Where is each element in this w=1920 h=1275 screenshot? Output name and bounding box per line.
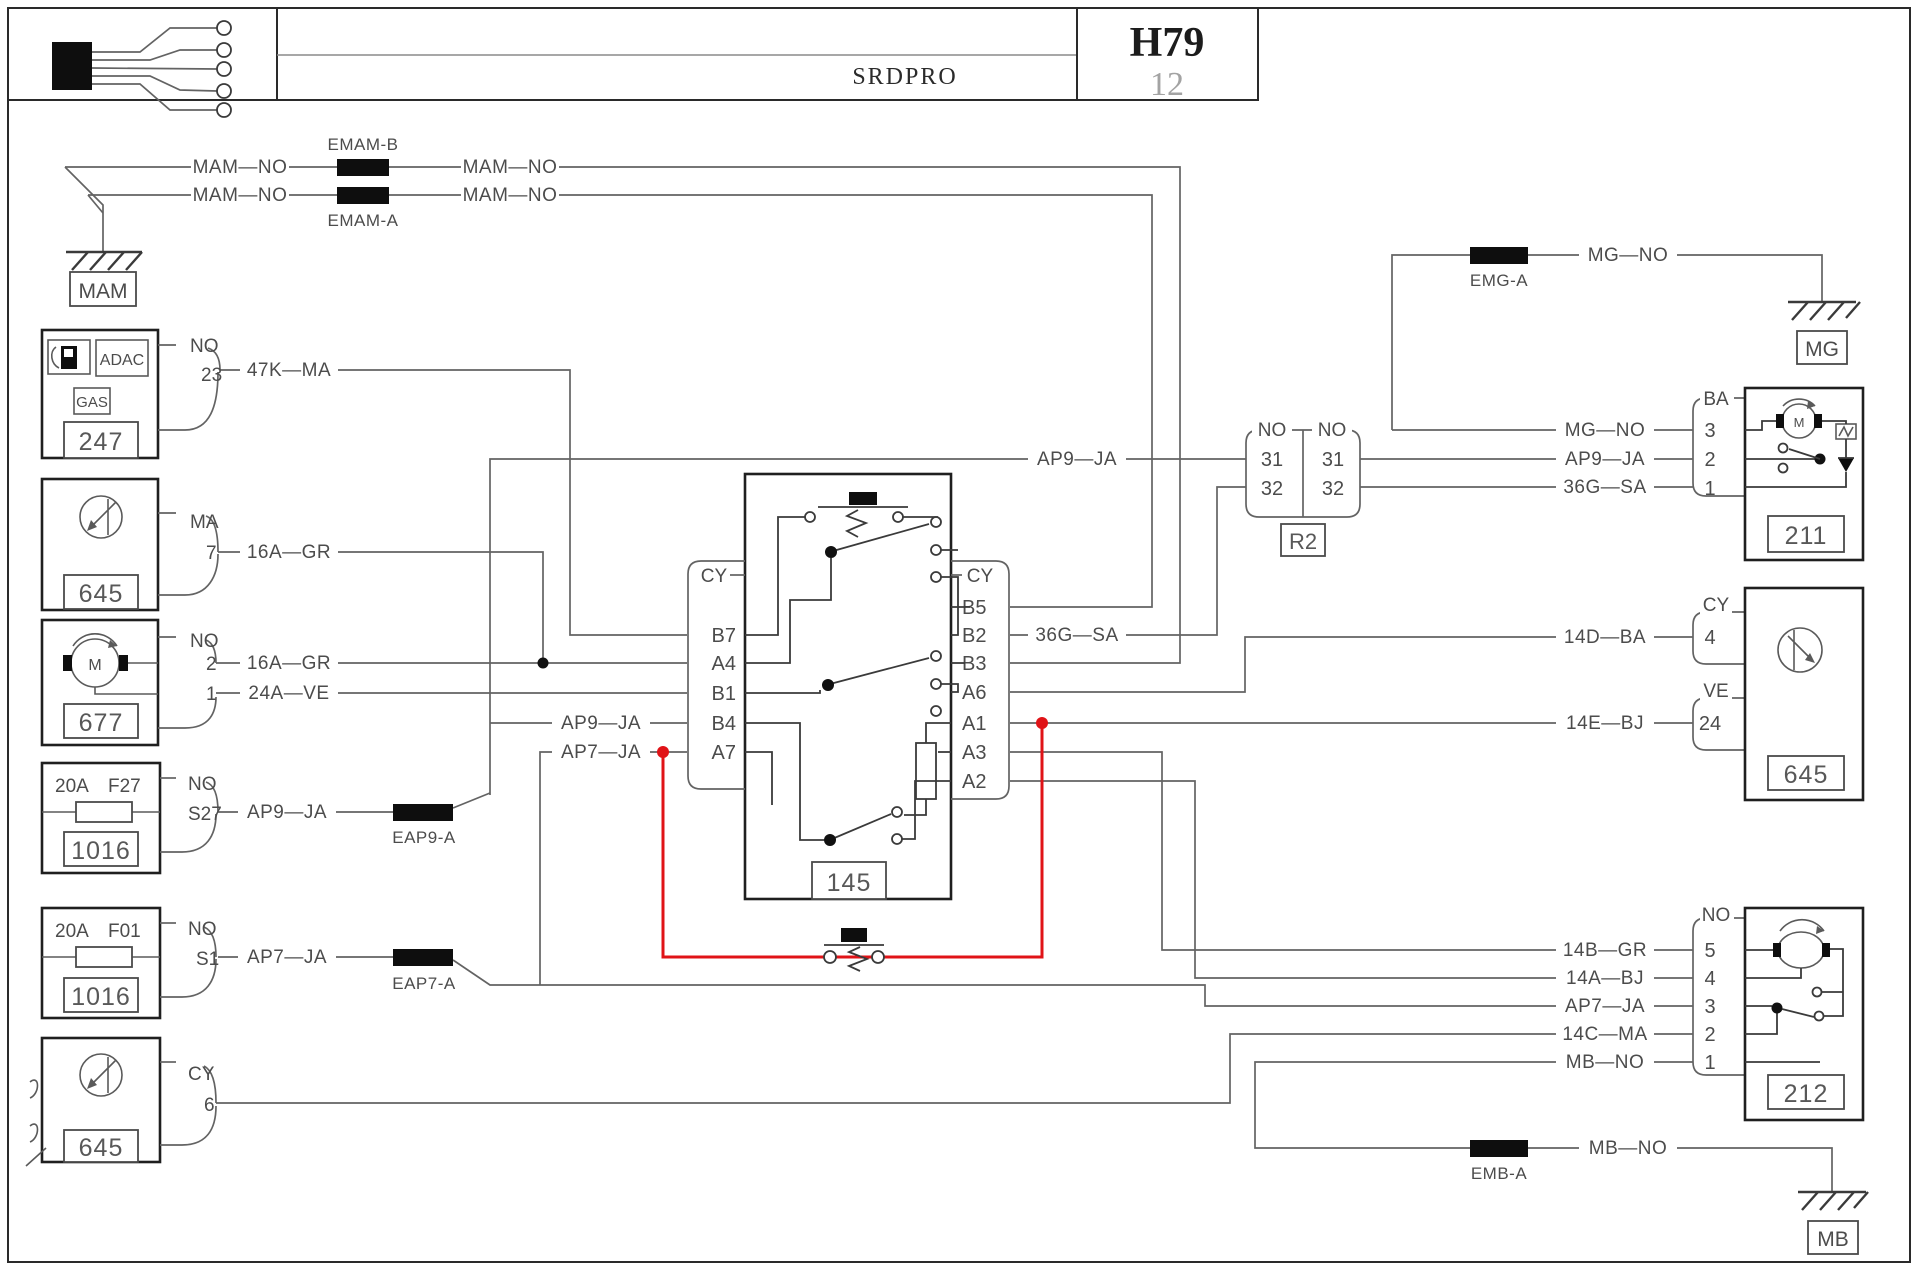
connector-number-r2: R2 xyxy=(1289,529,1317,554)
pin-a1: A1 xyxy=(962,713,986,735)
wire-label-mam-no: MAM—NO xyxy=(193,157,288,178)
ground-label-mb: MB xyxy=(1817,1228,1849,1251)
wiring-diagram-page: SRDPRO H79 12 xyxy=(0,0,1920,1270)
pin-color-ma: MA xyxy=(190,512,219,533)
ground-label-mg: MG xyxy=(1805,338,1839,361)
wire-mam-no-to-b3 xyxy=(65,167,1180,663)
adac-label: ADAC xyxy=(100,352,144,369)
pin-color-no: NO xyxy=(188,774,217,795)
pin-color-cy: CY xyxy=(188,1064,215,1085)
ground-label-mam: MAM xyxy=(79,280,128,303)
pin-a7: A7 xyxy=(712,742,736,764)
component-number-645: 645 xyxy=(1784,761,1829,789)
schematic-canvas: SRDPRO H79 12 xyxy=(0,0,1920,1270)
connector-color-no: NO xyxy=(1702,905,1731,926)
pin-a3: A3 xyxy=(962,742,986,764)
connector-squiggle xyxy=(30,1124,38,1142)
wire-mg-ground xyxy=(1392,255,1822,430)
component-number-1016: 1016 xyxy=(71,837,131,865)
connector-color-cy: CY xyxy=(967,566,994,587)
wire-label-ap7-ja: AP7—JA xyxy=(1565,996,1645,1017)
component-number-145: 145 xyxy=(827,869,872,897)
pin-s1: S1 xyxy=(196,949,219,970)
connector-color-ve: VE xyxy=(1703,681,1728,702)
pin-b4: B4 xyxy=(712,713,736,735)
fuse-rating: 20A xyxy=(55,921,89,942)
pin-b3: B3 xyxy=(962,653,986,675)
motor-icon: M xyxy=(1776,399,1822,438)
resistor-icon xyxy=(916,743,936,799)
pin-4: 4 xyxy=(1704,627,1715,649)
pin-3: 3 xyxy=(1704,420,1715,442)
pin-b7: B7 xyxy=(712,625,736,647)
wire-label-mb-no: MB—NO xyxy=(1566,1052,1645,1073)
fuse-icon xyxy=(76,947,132,967)
component-number-677: 677 xyxy=(79,709,124,737)
pin-2: 2 xyxy=(1704,1024,1715,1046)
component-211-pump: BA 3 2 1 M 211 xyxy=(1693,388,1863,560)
wire-label-mg-no: MG—NO xyxy=(1588,245,1669,266)
wire-label-16a-gr: 16A—GR xyxy=(247,542,331,563)
wire-ap7-main xyxy=(453,960,1693,1006)
svg-text:M: M xyxy=(1794,415,1805,430)
splice-eap9-a xyxy=(393,804,453,821)
component-number-211: 211 xyxy=(1785,522,1828,550)
splice-label-emam-a: EMAM-A xyxy=(328,211,399,230)
splice-label-emam-b: EMAM-B xyxy=(328,135,399,154)
component-number-212: 212 xyxy=(1784,1080,1829,1108)
pin-32-right: 32 xyxy=(1322,478,1344,500)
wire-47k-ma xyxy=(220,370,687,635)
fuse-id-f27: F27 xyxy=(108,776,141,797)
wire-label-36g-sa: 36G—SA xyxy=(1563,477,1646,498)
component-1016-fuse-f01: 20A F01 1016 NO S1 xyxy=(42,908,219,1018)
splice-eap7-a xyxy=(393,949,453,966)
splice-emg-a xyxy=(1470,247,1528,264)
connector-color-cy: CY xyxy=(1703,595,1730,616)
pin-a2: A2 xyxy=(962,771,986,793)
component-247-fuel-gauge: ADAC GAS 247 NO 23 xyxy=(42,330,222,458)
wire-mam-ground-lead1 xyxy=(65,167,103,252)
connector-color-ba: BA xyxy=(1703,389,1729,410)
pin-2: 2 xyxy=(206,654,217,675)
pin-b2: B2 xyxy=(962,625,986,647)
component-212-wiper-motor: NO 5 4 3 2 1 212 xyxy=(1693,905,1863,1120)
sheet-number: 12 xyxy=(1150,66,1184,103)
red-junction-a1 xyxy=(1036,717,1048,729)
pin-5: 5 xyxy=(1704,940,1715,962)
component-645-left: 645 MA 7 xyxy=(42,479,219,610)
internal-wiring xyxy=(1745,949,1843,1062)
pin-4: 4 xyxy=(1704,968,1715,990)
fuse-id-f01: F01 xyxy=(108,921,141,942)
wire-label-ap9-ja: AP9—JA xyxy=(1037,449,1117,470)
connector-color-cy: CY xyxy=(701,566,728,587)
internal-wiring xyxy=(1745,421,1846,487)
wire-label-ap7-ja: AP7—JA xyxy=(247,947,327,968)
pin-6: 6 xyxy=(204,1095,215,1116)
component-number-1016: 1016 xyxy=(71,983,131,1011)
component-645-right: CY 4 VE 24 645 xyxy=(1693,588,1863,800)
component-number-645: 645 xyxy=(79,580,124,608)
svg-text:M: M xyxy=(88,657,101,674)
motor-icon xyxy=(1773,920,1830,968)
wire-label-14e-bj: 14E—BJ xyxy=(1566,713,1644,734)
wire-label-mg-no: MG—NO xyxy=(1565,420,1646,441)
wire-label-ap9-ja: AP9—JA xyxy=(247,802,327,823)
ground-mam: MAM xyxy=(66,252,142,306)
gauge-icon xyxy=(1778,628,1822,672)
wire-ap7-a7 xyxy=(540,752,687,985)
gas-label: GAS xyxy=(76,394,108,411)
diode-icon xyxy=(1838,458,1854,472)
diagram-title: SRDPRO xyxy=(852,64,957,90)
push-button-icon xyxy=(849,492,877,505)
pin-3: 3 xyxy=(1704,996,1715,1018)
fuse-icon xyxy=(76,802,132,822)
wire-label-14a-bj: 14A—BJ xyxy=(1566,968,1644,989)
wire-label-14b-gr: 14B—GR xyxy=(1563,940,1647,961)
connector-bracket xyxy=(1693,918,1745,1075)
pin-1: 1 xyxy=(206,684,217,705)
ground-mg: MG xyxy=(1788,302,1860,364)
junction-16a-gr xyxy=(538,658,549,669)
wire-label-14d-ba: 14D—BA xyxy=(1564,627,1646,648)
component-1016-fuse-f27: 20A F27 1016 NO S27 xyxy=(42,763,222,873)
pin-color-no: NO xyxy=(190,336,219,357)
splice-emam-b xyxy=(337,159,389,176)
wire-16a-gr-branch xyxy=(218,552,543,663)
wire-label-ap9-ja: AP9—JA xyxy=(561,713,641,734)
connector-color-no: NO xyxy=(1258,420,1287,441)
wire-ap9-splice-diagonal xyxy=(453,793,490,808)
splice-label-emg-a: EMG-A xyxy=(1470,271,1528,290)
wire-label-mb-no: MB—NO xyxy=(1589,1138,1668,1159)
connector-color-no: NO xyxy=(1318,420,1347,441)
wire-label-14c-ma: 14C—MA xyxy=(1562,1024,1647,1045)
component-645-bottom: 645 CY 6 xyxy=(26,1038,216,1166)
pin-2: 2 xyxy=(1704,449,1715,471)
pin-1: 1 xyxy=(1704,1052,1715,1074)
splice-label-eap9-a: EAP9-A xyxy=(392,828,456,847)
splice-emam-a xyxy=(337,187,389,204)
pin-b5: B5 xyxy=(962,597,986,619)
ground-mb: MB xyxy=(1798,1192,1868,1254)
pin-31-right: 31 xyxy=(1322,449,1344,471)
pin-a4: A4 xyxy=(712,653,736,675)
connector-r2: NO NO 31 32 31 32 R2 xyxy=(1246,420,1360,556)
component-number-645: 645 xyxy=(79,1134,124,1162)
component-number-247: 247 xyxy=(79,428,124,456)
wire-label-16a-gr: 16A—GR xyxy=(247,653,331,674)
pin-7: 7 xyxy=(206,543,217,564)
connector-bracket xyxy=(1693,398,1745,496)
component-677-motor: M 677 NO 2 1 xyxy=(42,620,219,745)
pin-s27: S27 xyxy=(188,804,222,825)
pin-1: 1 xyxy=(1704,478,1715,500)
pin-b1: B1 xyxy=(712,683,736,705)
component-145-switch: CY B7 A4 B1 B4 A7 CY B5 B2 B3 A6 A1 A3 A… xyxy=(688,474,1009,899)
wire-label-ap7-ja: AP7—JA xyxy=(561,742,641,763)
red-junction-a7 xyxy=(657,746,669,758)
motor-icon: M xyxy=(63,634,158,694)
pin-23: 23 xyxy=(201,365,222,386)
wire-label-ap9-ja: AP9—JA xyxy=(1565,449,1645,470)
splice-label-eap7-a: EAP7-A xyxy=(392,974,456,993)
gauge-icon xyxy=(80,496,122,538)
connector-squiggle xyxy=(30,1080,38,1098)
pin-24: 24 xyxy=(1699,713,1721,735)
wire-36g-sa-to-r2 xyxy=(1010,487,1246,635)
wire-label-mam-no: MAM—NO xyxy=(463,157,558,178)
gauge-icon xyxy=(80,1054,122,1096)
switch-mechanism xyxy=(745,492,970,846)
splice-label-emb-a: EMB-A xyxy=(1471,1164,1528,1183)
sheet-code: H79 xyxy=(1130,20,1205,66)
wire-label-47k-ma: 47K—MA xyxy=(247,360,331,381)
wire-label-mam-no: MAM—NO xyxy=(193,185,288,206)
pin-color-no: NO xyxy=(190,631,219,652)
splice-emb-a xyxy=(1470,1140,1528,1157)
wire-14c-ma xyxy=(216,1034,1693,1103)
fuse-rating: 20A xyxy=(55,776,89,797)
header: SRDPRO H79 12 xyxy=(8,8,1258,117)
connector-bracket-cy xyxy=(1693,612,1745,664)
pin-color-no: NO xyxy=(188,919,217,940)
wire-label-24a-ve: 24A—VE xyxy=(248,683,329,704)
wire-label-36g-sa: 36G—SA xyxy=(1035,625,1118,646)
connector-pinout-icon xyxy=(52,21,231,117)
pin-31-left: 31 xyxy=(1261,449,1283,471)
red-loop-push-button-icon xyxy=(824,928,884,971)
pin-a6: A6 xyxy=(962,682,986,704)
wire-label-mam-no: MAM—NO xyxy=(463,185,558,206)
pin-32-left: 32 xyxy=(1261,478,1283,500)
